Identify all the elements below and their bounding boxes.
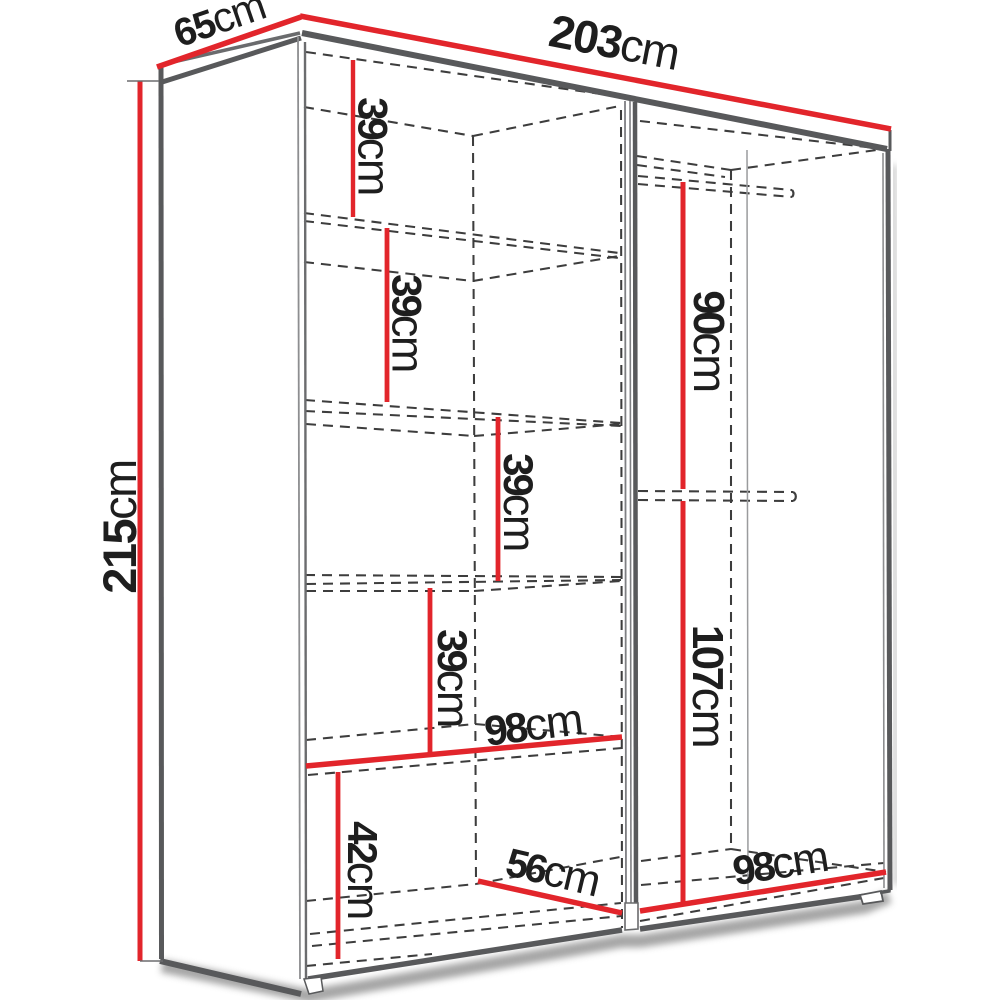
svg-text:39cm: 39cm [494, 453, 545, 551]
svg-text:90cm: 90cm [684, 290, 737, 392]
svg-text:39cm: 39cm [383, 274, 434, 372]
svg-text:42cm: 42cm [338, 821, 389, 919]
svg-text:56cm: 56cm [501, 837, 604, 907]
svg-text:39cm: 39cm [349, 97, 400, 195]
svg-text:98cm: 98cm [481, 693, 584, 756]
svg-text:215cm: 215cm [93, 460, 146, 594]
svg-text:107cm: 107cm [683, 625, 736, 748]
svg-text:39cm: 39cm [428, 629, 479, 727]
